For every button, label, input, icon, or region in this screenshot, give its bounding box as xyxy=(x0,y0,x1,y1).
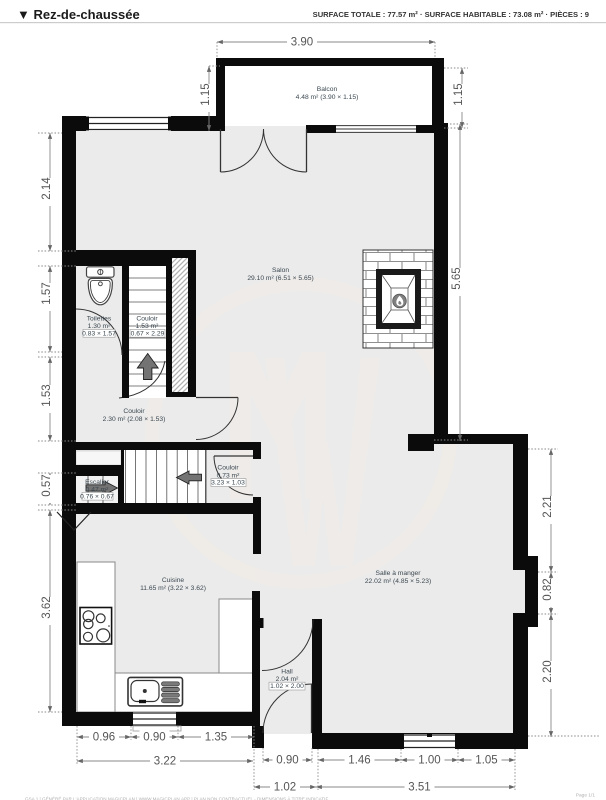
svg-text:2.14: 2.14 xyxy=(41,177,53,200)
svg-text:5.65: 5.65 xyxy=(451,267,463,289)
svg-text:3.90: 3.90 xyxy=(291,37,313,49)
svg-text:3.23 × 1.03: 3.23 × 1.03 xyxy=(211,480,245,487)
svg-text:Salle à manger: Salle à manger xyxy=(376,570,422,577)
svg-text:Page 1/1: Page 1/1 xyxy=(576,793,596,799)
svg-text:29.10 m² (6.51 × 5.65): 29.10 m² (6.51 × 5.65) xyxy=(247,275,313,282)
svg-text:Escalier: Escalier xyxy=(85,479,110,486)
svg-text:1.35: 1.35 xyxy=(205,732,227,744)
svg-text:11.65 m² (3.22 × 3.62): 11.65 m² (3.22 × 3.62) xyxy=(140,585,206,592)
svg-text:1.30 m²: 1.30 m² xyxy=(88,323,111,330)
svg-text:0.76 × 0.67: 0.76 × 0.67 xyxy=(80,494,114,501)
svg-text:2.30 m² (2.08 × 1.53): 2.30 m² (2.08 × 1.53) xyxy=(103,416,166,423)
svg-text:1.15: 1.15 xyxy=(200,83,212,105)
svg-text:2.21: 2.21 xyxy=(542,495,554,517)
svg-text:0.67 × 2.29: 0.67 × 2.29 xyxy=(131,330,165,337)
svg-text:0.90: 0.90 xyxy=(276,755,298,767)
svg-text:3.62: 3.62 xyxy=(41,596,53,618)
svg-text:3.22: 3.22 xyxy=(154,756,176,768)
svg-text:▼ Rez-de-chaussée: ▼ Rez-de-chaussée xyxy=(17,7,140,22)
svg-text:0.90: 0.90 xyxy=(143,732,165,744)
svg-text:4.48 m² (3.90 × 1.15): 4.48 m² (3.90 × 1.15) xyxy=(296,94,359,101)
svg-text:GSA 1 | GÉNÉRÉ PAR L'APPLICATI: GSA 1 | GÉNÉRÉ PAR L'APPLICATION MAGICPL… xyxy=(25,796,328,800)
svg-text:3.51: 3.51 xyxy=(408,782,430,794)
svg-text:2.20: 2.20 xyxy=(542,660,554,682)
svg-text:Toilettes: Toilettes xyxy=(87,316,112,323)
svg-text:Couloir: Couloir xyxy=(217,465,239,472)
svg-text:0.83 × 1.57: 0.83 × 1.57 xyxy=(82,330,116,337)
svg-text:1.02 × 2.00: 1.02 × 2.00 xyxy=(270,683,304,690)
svg-text:1.05: 1.05 xyxy=(475,755,497,767)
svg-text:0.57: 0.57 xyxy=(41,474,53,496)
svg-text:Salon: Salon xyxy=(272,267,289,274)
svg-text:1.57: 1.57 xyxy=(41,282,53,304)
svg-text:0.96: 0.96 xyxy=(93,732,115,744)
svg-text:SURFACE TOTALE : 77.57 m² ·: SURFACE TOTALE : 77.57 m² · SURFACE HABI… xyxy=(313,10,589,19)
svg-text:1.00: 1.00 xyxy=(418,755,440,767)
svg-text:1.53 m²: 1.53 m² xyxy=(136,323,159,330)
svg-text:1.02: 1.02 xyxy=(274,782,296,794)
svg-text:1.46: 1.46 xyxy=(348,755,370,767)
svg-text:1.15: 1.15 xyxy=(453,83,465,105)
svg-text:Cuisine: Cuisine xyxy=(162,577,185,584)
svg-text:Balcon: Balcon xyxy=(317,86,338,93)
svg-text:Couloir: Couloir xyxy=(123,408,145,415)
svg-text:Hall: Hall xyxy=(281,669,293,676)
svg-text:Couloir: Couloir xyxy=(136,316,158,323)
svg-text:1.53: 1.53 xyxy=(41,384,53,406)
svg-text:22.02 m² (4.85 × 5.23): 22.02 m² (4.85 × 5.23) xyxy=(365,578,431,585)
svg-text:0.82: 0.82 xyxy=(542,578,554,600)
